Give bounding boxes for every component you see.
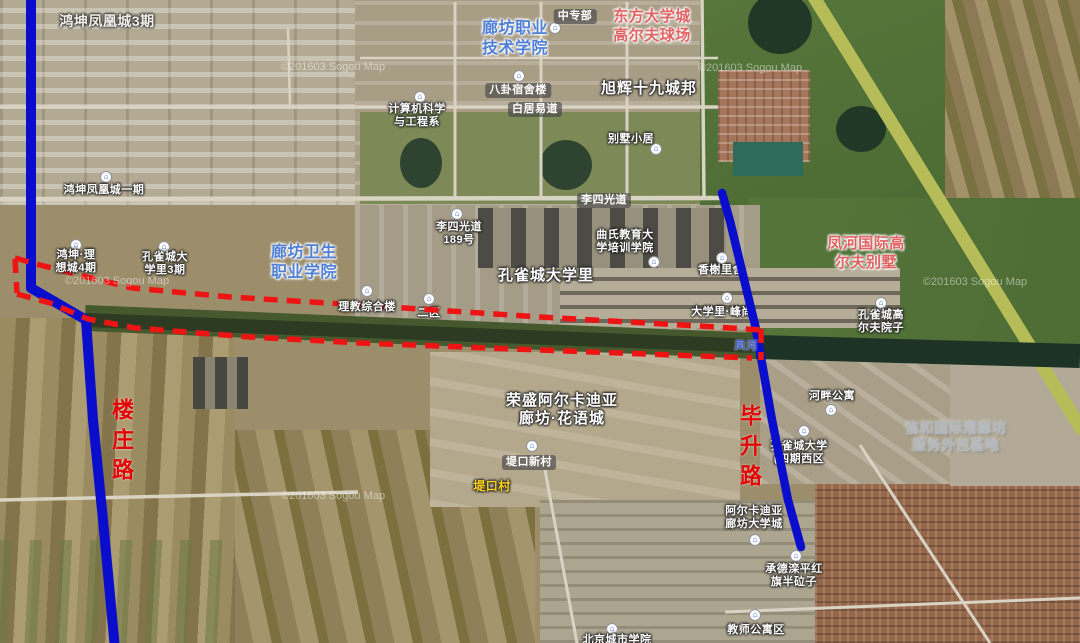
poi-label-lijiao-building: 理教综合楼 [338, 301, 396, 314]
area-label-kongquecheng-daxueli: 孔雀城大学里 [498, 267, 594, 285]
road-name-bisheng-road: 毕升路 [733, 404, 765, 494]
poi-label-beijing-city-univ: 北京城市学院 [583, 634, 652, 643]
copyright-watermark: ©201603 Sogou Map [698, 62, 802, 74]
poi-icon: ⌂ [423, 293, 435, 305]
poi-icon: ⌂ [526, 440, 538, 452]
poi-icon: ⌂ [875, 297, 887, 309]
poi-icon: ⌂ [749, 609, 761, 621]
poi-label-bieshu-xiaoju: 别墅小居 [608, 133, 654, 146]
planned-road-dashed-west-end [15, 259, 17, 293]
poi-icon: ⌂ [513, 70, 525, 82]
poi-label-kongquecheng-golf: 孔雀城高 尔夫院子 [858, 309, 904, 335]
village-label-dikou: 堤口村 [473, 480, 511, 493]
area-label-hongkun-phoenix-3: 鸿坤凤凰城3期 [59, 13, 154, 30]
poi-label-qushi-education: 曲氏教育大 学培训学院 [596, 229, 654, 255]
road-label-baijuyi: 白居易道 [508, 102, 562, 117]
poi-icon: ⌂ [716, 252, 728, 264]
poi-label-hongkun-phoenix-1: 鸿坤凤凰城一期 [64, 184, 145, 197]
poi-icon: ⌂ [721, 292, 733, 304]
poi-label-arcadia-university: 阿尔卡迪亚 廊坊大学城 [725, 505, 783, 531]
copyright-watermark: ©201603 Sogou Map [281, 490, 385, 502]
campus-label-langfang-health: 廊坊卫生 职业学院 [271, 243, 337, 283]
copyright-watermark: ©201603 Sogou Map [281, 61, 385, 73]
poi-label-chengde-luanping: 承德滦平红 旗半砬子 [765, 563, 823, 589]
planned-road-dashed-upper [15, 258, 761, 330]
poi-label-bagua-dorm: 八卦宿舍楼 [485, 83, 551, 98]
route-line-louzhuang-road [31, 0, 115, 643]
poi-icon: ⌂ [749, 534, 761, 546]
poi-icon: ⌂ [790, 550, 802, 562]
poi-icon: ⌂ [100, 171, 112, 183]
area-label-xinhe-outsourcing: 信和国际港廊坊 服务外包基地 [905, 420, 1007, 454]
poi-icon: ⌂ [414, 91, 426, 103]
road-name-louzhuang-road: 楼庄路 [105, 398, 137, 488]
poi-icon: ⌂ [451, 208, 463, 220]
poi-icon: ⌂ [825, 404, 837, 416]
poi-label-hongkun-lixiang-4: 鸿坤·理 想城4期 [55, 249, 96, 275]
poi-label-hepan-apartment: 河畔公寓 [809, 390, 855, 403]
copyright-watermark: ©201603 Sogou Map [65, 275, 169, 287]
poi-icon: ⌂ [361, 285, 373, 297]
resort-label-dongfang-golf: 东方大学城 高尔夫球场 [613, 7, 691, 45]
road-label-lisiguang: 李四光道 [577, 193, 631, 208]
river-label-fenghe: 凤河 [735, 340, 758, 353]
poi-icon: ⌂ [798, 425, 810, 437]
area-label-xuhui-19: 旭辉十九城邦 [601, 80, 697, 98]
poi-label-teacher-apartment: 教师公寓区 [727, 624, 785, 637]
poi-label-computer-dept: 计算机科学 与工程系 [388, 103, 446, 129]
copyright-watermark: ©201603 Sogou Map [923, 276, 1027, 288]
poi-icon: ⌂ [648, 256, 660, 268]
poi-label-kongquecheng-3: 孔雀城大 学里3期 [142, 251, 188, 277]
resort-label-fenghe-intl-villa: 凤河国际高 尔夫别墅 [827, 234, 905, 272]
campus-label-langfang-polytechnic: 廊坊职业 技术学院 [482, 19, 548, 59]
map-canvas[interactable]: 香榭里舍 大学里·峰尚 二区 孔雀城大学 (四期西区 ⌂ ⌂ ⌂ ⌂ ⌂ ⌂ ⌂… [0, 0, 1080, 643]
poi-label-lisiguang-189: 李四光道 189号 [436, 221, 482, 247]
poi-label-zhongzhuanbu: 中专部 [554, 9, 597, 24]
poi-label-dikou-xincun: 堤口新村 [502, 455, 556, 470]
area-label-rongsheng-arcadia: 荣盛阿尔卡迪亚 廊坊·花语城 [506, 392, 618, 428]
